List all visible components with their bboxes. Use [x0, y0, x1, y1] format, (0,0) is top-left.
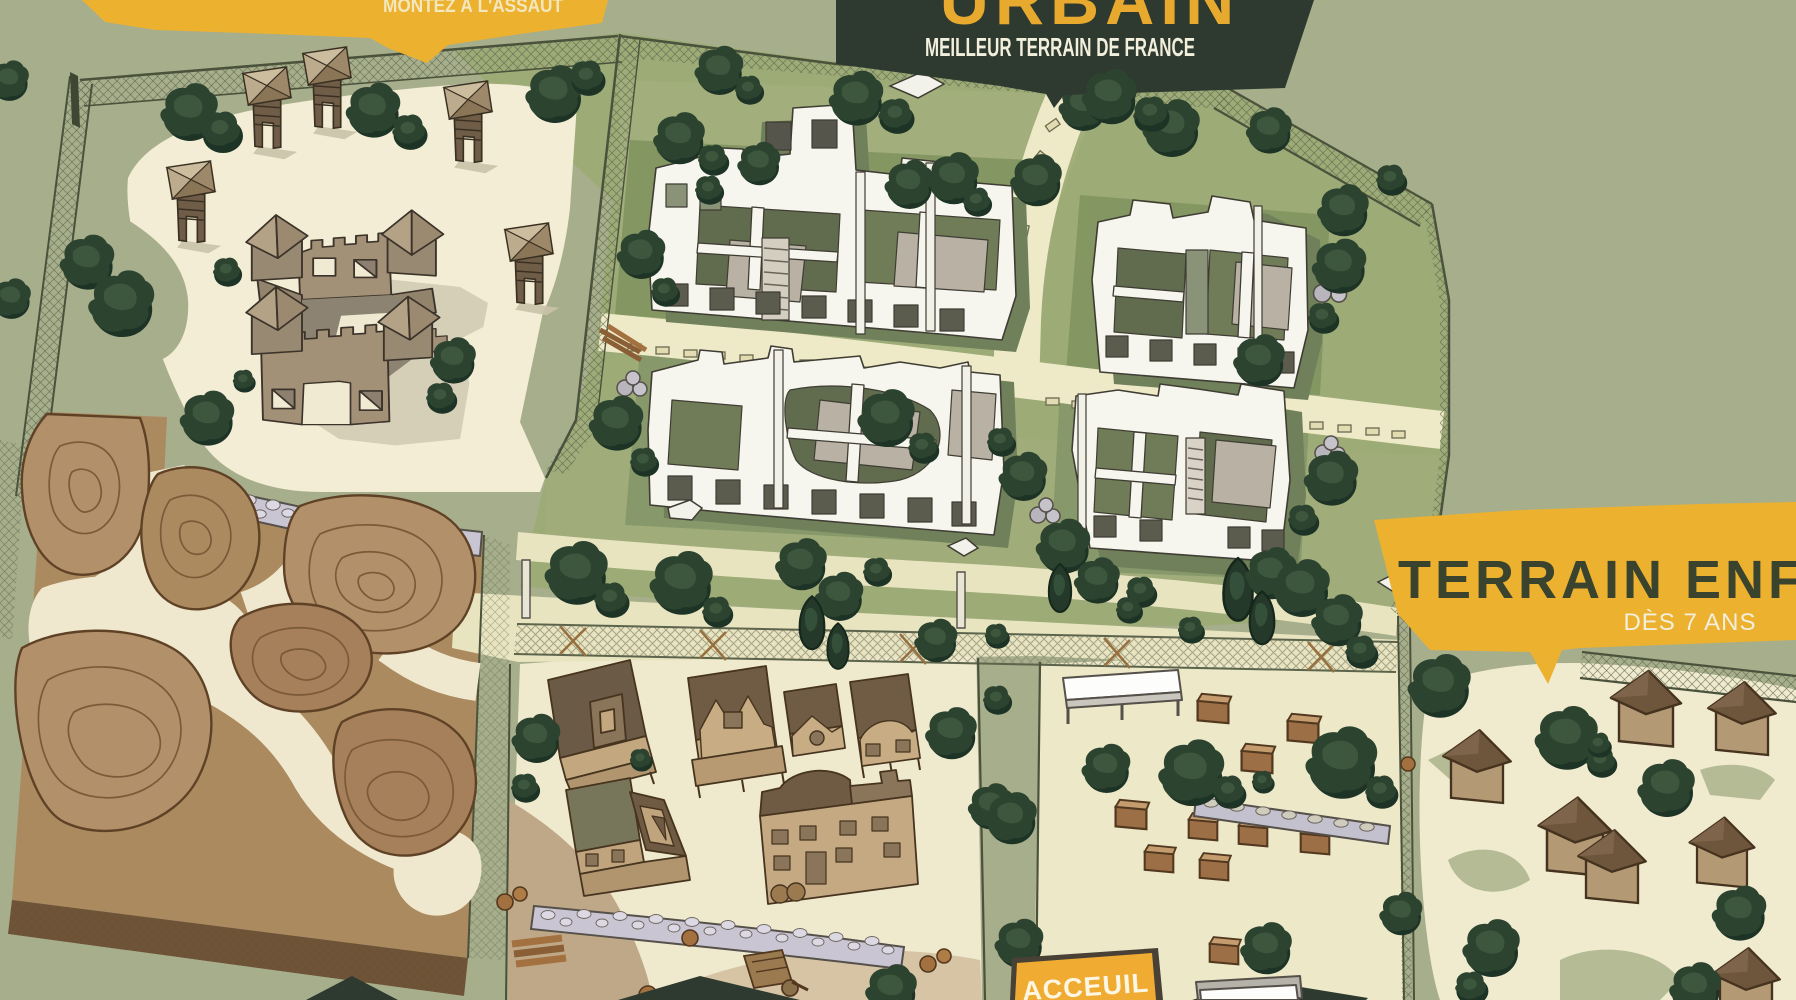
svg-text:TERRAIN ENFANTS: TERRAIN ENFANTS: [1398, 550, 1796, 610]
svg-text:MONTEZ À L'ASSAUT: MONTEZ À L'ASSAUT: [383, 0, 563, 17]
svg-text:DÈS 7 ANS: DÈS 7 ANS: [1623, 609, 1756, 636]
svg-text:MEILLEUR TERRAIN DE FRANCE: MEILLEUR TERRAIN DE FRANCE: [925, 32, 1195, 62]
